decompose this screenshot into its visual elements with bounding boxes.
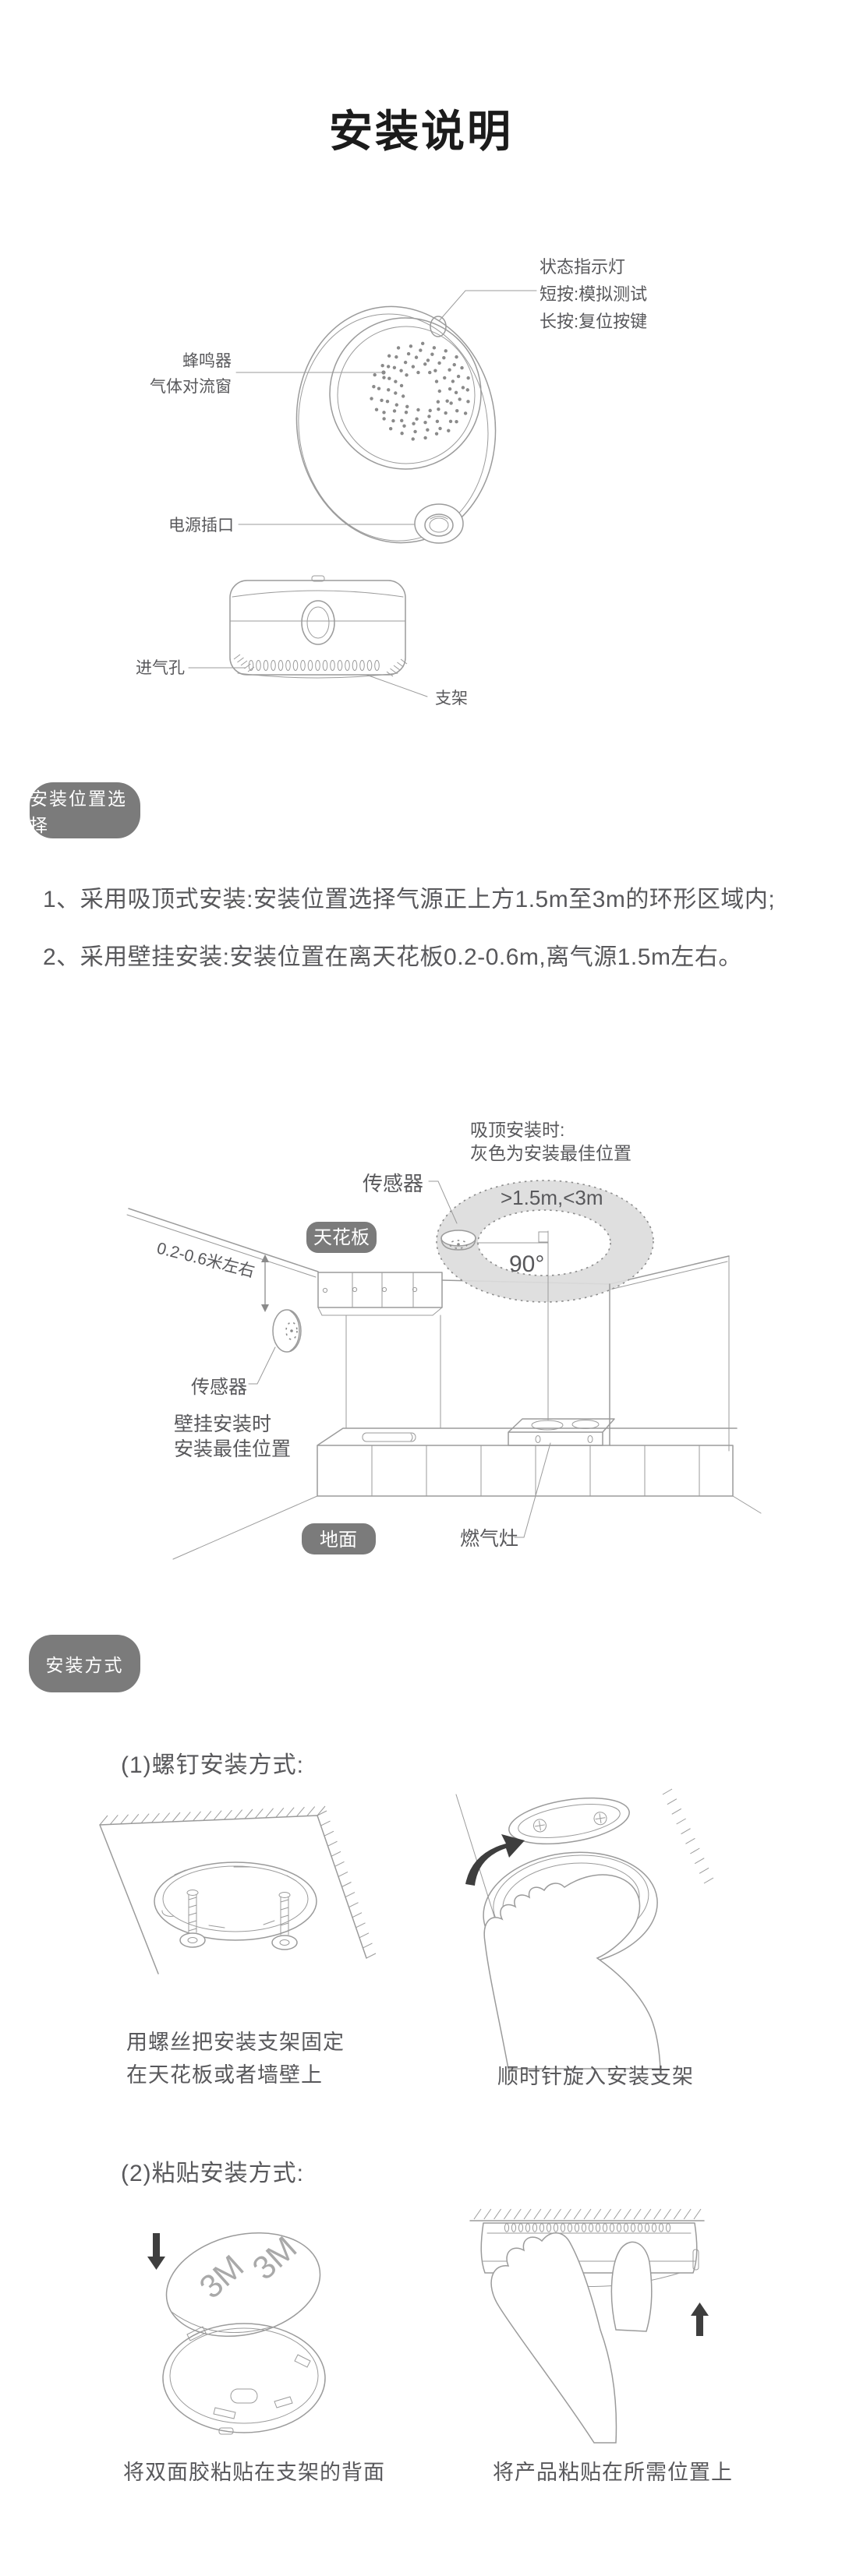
down-arrow-icon <box>147 2233 165 2270</box>
sticker-text-2: 3M <box>246 2229 304 2287</box>
page-title: 安装说明 <box>0 97 842 160</box>
gas-stove <box>508 1419 614 1445</box>
air-inlet-label: 进气孔 <box>136 659 185 677</box>
method2-diagram: 3M 3M <box>47 2205 795 2462</box>
method2-caption-left: 将双面胶粘贴在支架的背面 <box>123 2456 385 2489</box>
kitchen-diagram: 天花板 地面 吸顶安装时: 灰色为安装最佳位置 传感器 >1.5m,<3m 90… <box>109 1110 764 1566</box>
screw-icon-right <box>272 1893 297 1950</box>
wall-sensor-icon <box>273 1310 301 1352</box>
manual-page: 安装说明 状态指示灯 短按:模拟测试 长按: <box>0 0 842 2576</box>
angle-label: 90° <box>509 1251 544 1277</box>
hand-illustration <box>484 1875 660 2069</box>
floor-badge: 地面 <box>302 1523 376 1554</box>
wall-note-1: 壁挂安装时 <box>174 1413 271 1435</box>
short-press-label: 短按:模拟测试 <box>540 284 647 304</box>
device-diagram: 状态指示灯 短按:模拟测试 长按:复位按键 蜂鸣器 气体对流窗 电源插口 进气孔… <box>109 226 764 717</box>
status-leader-line <box>439 291 536 321</box>
bracket-label: 支架 <box>435 690 468 708</box>
screw-install-panel <box>100 1806 376 1974</box>
power-port-label: 电源插口 <box>168 517 234 535</box>
gas-window-label: 气体对流窗 <box>150 378 232 396</box>
buzzer-label: 蜂鸣器 <box>182 352 232 370</box>
screw-install-hand <box>456 1789 713 2069</box>
stove-label: 燃气灶 <box>460 1528 518 1550</box>
wall-sensor-label: 传感器 <box>191 1377 247 1398</box>
ceiling-note-1: 吸顶安装时: <box>470 1120 564 1140</box>
wall-distance-arrow <box>261 1254 269 1312</box>
method1-caption-left-line2: 在天花板或者墙壁上 <box>126 2059 345 2091</box>
status-light-label: 状态指示灯 <box>540 257 625 277</box>
device-top-view <box>281 294 511 556</box>
instruction-item-2: 2、采用壁挂安装:安装位置在离天花板0.2-0.6m,离气源1.5m左右。 <box>43 929 798 986</box>
method1-title: (1)螺钉安装方式: <box>121 1745 304 1780</box>
section-badge-method: 安装方式 <box>29 1635 140 1692</box>
ceiling-sensor-label: 传感器 <box>363 1172 423 1195</box>
section-badge-position: 安装位置选择 <box>30 782 140 838</box>
device-side-view <box>230 576 407 678</box>
method2-title: (2)粘贴安装方式: <box>121 2154 304 2188</box>
sink <box>363 1433 416 1442</box>
right-angle-marker <box>539 1232 548 1242</box>
wall-cabinet <box>318 1272 442 1428</box>
method2-caption-right: 将产品粘贴在所需位置上 <box>493 2456 733 2489</box>
method1-caption-left: 用螺丝把安装支架固定 在天花板或者墙壁上 <box>126 2026 345 2091</box>
screw-icon-left <box>180 1890 205 1948</box>
ceiling-badge: 天花板 <box>306 1222 377 1253</box>
wall-note-2: 安装最佳位置 <box>174 1438 291 1460</box>
svg-text:地面: 地面 <box>320 1530 357 1551</box>
vent-hatching <box>234 655 407 676</box>
sticker-install: 3M 3M <box>147 2218 331 2434</box>
adhesive-disc <box>156 2218 331 2351</box>
method1-caption-left-line1: 用螺丝把安装支架固定 <box>126 2026 345 2059</box>
stove-leader <box>515 1443 550 1537</box>
ceiling-note-2: 灰色为安装最佳位置 <box>470 1143 631 1163</box>
position-instructions: 1、采用吸顶式安装:安装位置选择气源正上方1.5m至3m的环形区域内; 2、采用… <box>43 871 798 986</box>
wall-sensor-leader <box>249 1347 275 1384</box>
range-label: >1.5m,<3m <box>501 1186 603 1209</box>
mounted-bracket <box>506 1791 633 1851</box>
bracket-leader-line <box>366 675 427 697</box>
thumb-illustration <box>611 2242 651 2331</box>
air-inlet-vents <box>249 661 379 671</box>
sticker-text-1: 3M <box>193 2248 251 2306</box>
floor-line-left <box>173 1496 317 1559</box>
hand-illustration-2 <box>491 2233 616 2443</box>
method1-caption-right: 顺时针旋入安装支架 <box>497 2060 694 2093</box>
svg-text:天花板: 天花板 <box>313 1227 370 1248</box>
speaker-grille <box>370 342 469 441</box>
power-port-icon <box>415 504 463 543</box>
bracket-back <box>163 2324 325 2434</box>
press-install <box>470 2209 709 2443</box>
rotate-arrow-icon <box>465 1834 525 1886</box>
up-arrow-icon <box>691 2303 709 2336</box>
long-press-label: 长按:复位按键 <box>540 312 647 331</box>
instruction-item-1: 1、采用吸顶式安装:安装位置选择气源正上方1.5m至3m的环形区域内; <box>43 871 798 929</box>
floor-line-right <box>733 1496 761 1513</box>
